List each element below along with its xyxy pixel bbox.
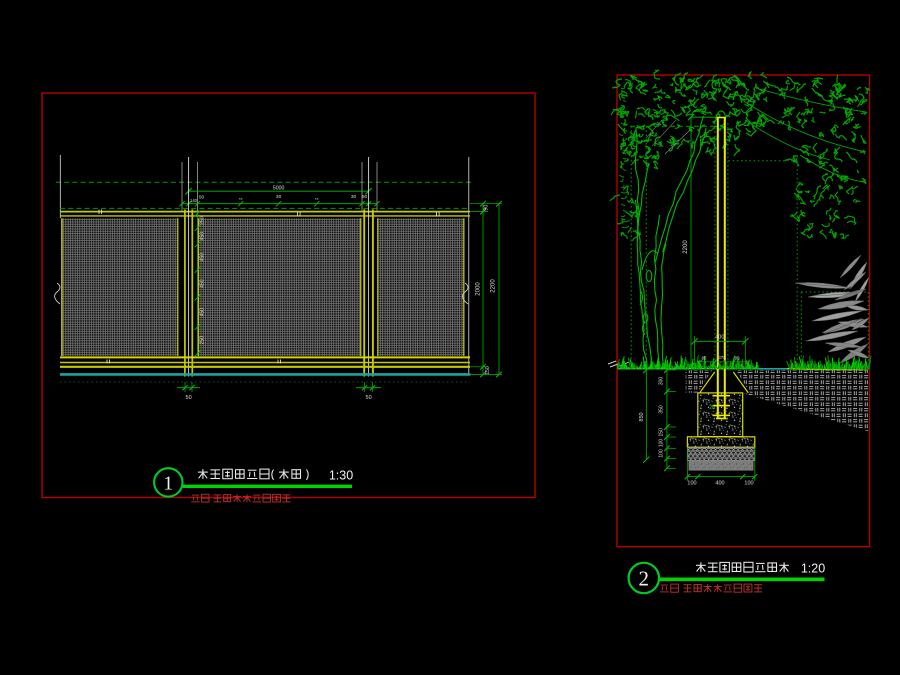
svg-text:100: 100 — [659, 449, 665, 458]
svg-text:2000: 2000 — [476, 282, 482, 296]
svg-text:1:20: 1:20 — [801, 562, 825, 576]
svg-text:300: 300 — [659, 377, 665, 386]
svg-text:400: 400 — [715, 481, 724, 487]
svg-text:85: 85 — [734, 356, 740, 361]
svg-text:5000: 5000 — [273, 186, 285, 192]
svg-text:1: 1 — [163, 473, 173, 494]
svg-text:250: 250 — [200, 216, 206, 225]
svg-text:2200: 2200 — [491, 279, 497, 293]
svg-text:370: 370 — [718, 355, 726, 360]
svg-text:85: 85 — [701, 356, 707, 361]
svg-text:50: 50 — [186, 395, 192, 401]
svg-text:**: ** — [239, 197, 243, 203]
svg-text:100: 100 — [687, 481, 696, 487]
svg-text:30: 30 — [276, 194, 282, 200]
svg-text:1:30: 1:30 — [329, 468, 353, 482]
svg-text:400: 400 — [715, 335, 724, 341]
svg-text:30: 30 — [351, 194, 357, 200]
svg-text:450: 450 — [200, 253, 206, 262]
svg-text:450: 450 — [200, 308, 206, 317]
svg-text:450: 450 — [200, 232, 206, 241]
svg-text:150: 150 — [485, 366, 491, 375]
svg-text:2: 2 — [639, 567, 650, 591]
svg-text:450: 450 — [200, 279, 206, 288]
svg-text:100: 100 — [744, 481, 753, 487]
svg-text:100: 100 — [659, 439, 665, 448]
svg-text:20: 20 — [709, 405, 715, 411]
svg-text:850: 850 — [639, 412, 645, 421]
svg-text:140: 140 — [190, 198, 198, 203]
svg-text:150: 150 — [659, 428, 665, 437]
svg-text:**: ** — [315, 197, 319, 203]
svg-text:250: 250 — [200, 336, 206, 345]
svg-text:90: 90 — [484, 205, 490, 211]
svg-text:2200: 2200 — [683, 240, 689, 254]
svg-text:350: 350 — [659, 405, 665, 414]
svg-text:50: 50 — [366, 395, 372, 401]
svg-text:50: 50 — [199, 195, 205, 201]
svg-text:50: 50 — [362, 194, 368, 200]
